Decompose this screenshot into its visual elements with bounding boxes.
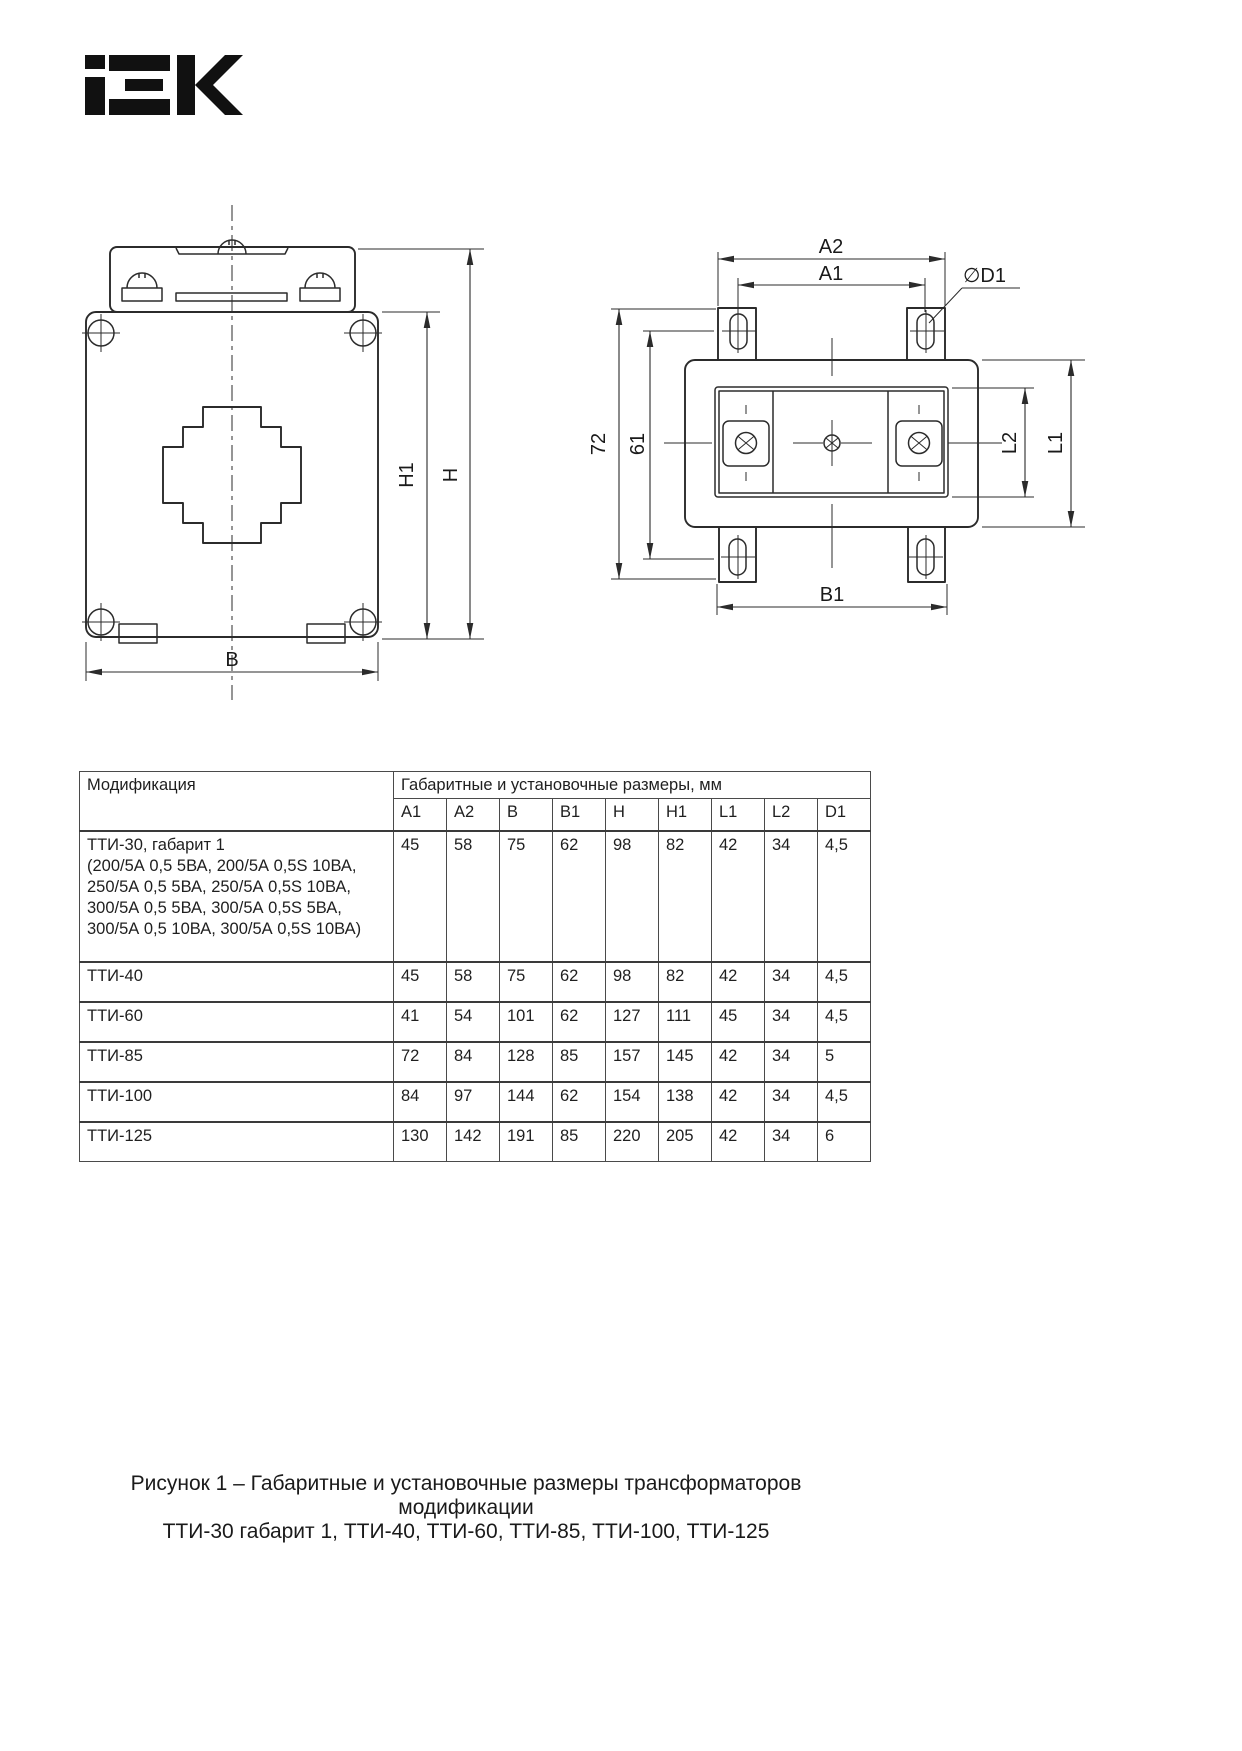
dim-value-cell: 42 (712, 831, 765, 962)
dim-header: H1 (659, 799, 712, 832)
dim-value-cell: 205 (659, 1122, 712, 1162)
dim-label-h1: H1 (396, 462, 418, 488)
table-row: ТТИ-100 84 97 144 62 154 138 42 34 4,5 (80, 1082, 871, 1122)
modification-name: ТТИ-30, габарит 1 (87, 835, 391, 856)
dim-value-cell: 84 (394, 1082, 447, 1122)
modification-detail: 300/5А 0,5 10ВА, 300/5А 0,5S 10ВА) (87, 919, 391, 940)
table-row: ТТИ-60 41 54 101 62 127 111 45 34 4,5 (80, 1002, 871, 1042)
dim-value-cell: 4,5 (818, 1082, 871, 1122)
dim-value-cell: 42 (712, 1122, 765, 1162)
dim-value-cell: 42 (712, 1042, 765, 1082)
dim-value-cell: 191 (500, 1122, 553, 1162)
dim-value-cell: 54 (447, 1002, 500, 1042)
dim-value-cell: 97 (447, 1082, 500, 1122)
dim-label-l2: L2 (999, 432, 1021, 454)
dim-value-cell: 111 (659, 1002, 712, 1042)
dim-value-cell: 34 (765, 1042, 818, 1082)
dim-value-cell: 4,5 (818, 831, 871, 962)
dim-value-cell: 58 (447, 962, 500, 1002)
dim-value-cell: 82 (659, 962, 712, 1002)
dim-label-h: H (440, 468, 462, 482)
dim-value-cell: 34 (765, 831, 818, 962)
dim-header: L2 (765, 799, 818, 832)
dim-value-cell: 82 (659, 831, 712, 962)
dim-value-cell: 4,5 (818, 1002, 871, 1042)
dim-value-cell: 98 (606, 962, 659, 1002)
dim-header: H (606, 799, 659, 832)
dim-label-a1: A1 (819, 263, 843, 285)
dim-value-cell: 58 (447, 831, 500, 962)
dim-value-cell: 127 (606, 1002, 659, 1042)
dim-value-cell: 34 (765, 1002, 818, 1042)
dim-label-a2: A2 (819, 236, 843, 258)
dim-value-cell: 101 (500, 1002, 553, 1042)
dim-value-cell: 62 (553, 1002, 606, 1042)
datasheet-page: H1 H B (0, 0, 1242, 1751)
dim-header: L1 (712, 799, 765, 832)
table-row: ТТИ-85 72 84 128 85 157 145 42 34 5 (80, 1042, 871, 1082)
col-header-modification: Модификация (80, 772, 394, 832)
modification-cell: ТТИ-100 (80, 1082, 394, 1122)
table-row: ТТИ-125 130 142 191 85 220 205 42 34 6 (80, 1122, 871, 1162)
dim-value-cell: 84 (447, 1042, 500, 1082)
dim-label-b1: B1 (820, 584, 844, 606)
dim-header: B (500, 799, 553, 832)
modification-cell: ТТИ-40 (80, 962, 394, 1002)
modification-cell: ТТИ-125 (80, 1122, 394, 1162)
dim-value-cell: 4,5 (818, 962, 871, 1002)
front-view-drawing: H1 H B (82, 205, 484, 700)
table-row: ТТИ-30, габарит 1 (200/5А 0,5 5ВА, 200/5… (80, 831, 871, 962)
dim-value-cell: 34 (765, 962, 818, 1002)
dim-value-cell: 45 (394, 831, 447, 962)
dim-label-d1: ∅D1 (963, 265, 1006, 287)
dim-value-cell: 157 (606, 1042, 659, 1082)
dim-value-cell: 138 (659, 1082, 712, 1122)
dim-value-cell: 5 (818, 1042, 871, 1082)
dim-value-cell: 85 (553, 1122, 606, 1162)
dim-value-cell: 34 (765, 1082, 818, 1122)
dim-value-cell: 34 (765, 1122, 818, 1162)
modification-cell: ТТИ-30, габарит 1 (200/5А 0,5 5ВА, 200/5… (80, 831, 394, 962)
dim-value-cell: 45 (394, 962, 447, 1002)
dim-value-cell: 142 (447, 1122, 500, 1162)
dim-label-l1: L1 (1045, 432, 1067, 454)
dim-label-72: 72 (588, 433, 610, 455)
modification-detail: 250/5А 0,5 5ВА, 250/5А 0,5S 10ВА, (87, 877, 391, 898)
dim-value-cell: 6 (818, 1122, 871, 1162)
dim-header: A1 (394, 799, 447, 832)
dim-value-cell: 45 (712, 1002, 765, 1042)
dim-value-cell: 72 (394, 1042, 447, 1082)
top-view-drawing: A2 A1 ∅D1 72 61 L2 L1 (588, 236, 1085, 615)
modification-detail: (200/5А 0,5 5ВА, 200/5А 0,5S 10ВА, (87, 856, 391, 877)
dim-value-cell: 42 (712, 1082, 765, 1122)
dim-value-cell: 62 (553, 962, 606, 1002)
dim-value-cell: 144 (500, 1082, 553, 1122)
dim-value-cell: 98 (606, 831, 659, 962)
dim-value-cell: 220 (606, 1122, 659, 1162)
modification-cell: ТТИ-60 (80, 1002, 394, 1042)
dim-header: D1 (818, 799, 871, 832)
dim-value-cell: 85 (553, 1042, 606, 1082)
col-header-dimensions: Габаритные и установочные размеры, мм (394, 772, 871, 799)
dim-header: A2 (447, 799, 500, 832)
figure-caption-line2: ТТИ-30 габарит 1, ТТИ-40, ТТИ-60, ТТИ-85… (75, 1520, 857, 1544)
dim-value-cell: 145 (659, 1042, 712, 1082)
dim-value-cell: 130 (394, 1122, 447, 1162)
dim-value-cell: 62 (553, 1082, 606, 1122)
dim-value-cell: 75 (500, 962, 553, 1002)
table-row: ТТИ-40 45 58 75 62 98 82 42 34 4,5 (80, 962, 871, 1002)
dim-label-b: B (225, 649, 238, 671)
dim-value-cell: 41 (394, 1002, 447, 1042)
dim-value-cell: 154 (606, 1082, 659, 1122)
technical-drawings: H1 H B (0, 0, 1242, 760)
dim-value-cell: 62 (553, 831, 606, 962)
modification-cell: ТТИ-85 (80, 1042, 394, 1082)
modification-detail: 300/5А 0,5 5ВА, 300/5А 0,5S 5ВА, (87, 898, 391, 919)
dim-header: B1 (553, 799, 606, 832)
figure-caption-line1: Рисунок 1 – Габаритные и установочные ра… (75, 1472, 857, 1520)
dim-value-cell: 75 (500, 831, 553, 962)
dim-label-61: 61 (627, 433, 649, 455)
dim-value-cell: 42 (712, 962, 765, 1002)
dim-value-cell: 128 (500, 1042, 553, 1082)
dimensions-table: Модификация Габаритные и установочные ра… (79, 771, 871, 1162)
